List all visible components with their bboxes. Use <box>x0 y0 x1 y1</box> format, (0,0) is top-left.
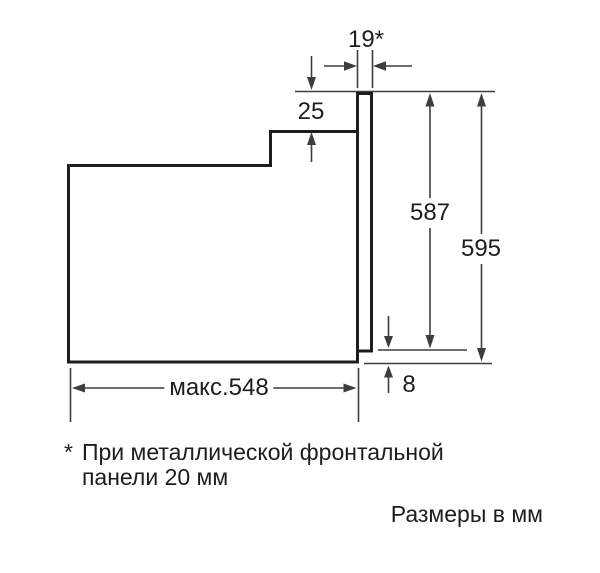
dim-front-panel-thickness-lines <box>324 50 412 88</box>
dim-panel-height-label: 587 <box>405 198 455 228</box>
dim-total-height-label: 595 <box>456 234 506 264</box>
units-note: Размеры в мм <box>391 501 543 528</box>
oven-front-panel-outline <box>358 94 372 352</box>
dim-front-panel-thickness-label: 19* <box>348 28 384 52</box>
footnote-line1: При металлической фронтальной <box>82 439 444 465</box>
dim-bottom-offset-lines <box>384 316 393 393</box>
dim-bottom-offset-label: 8 <box>402 373 415 397</box>
footnote-line2: панели 20 мм <box>82 464 228 490</box>
dim-max-depth-label: макс.548 <box>164 373 273 403</box>
footnote: * При металлической фронтальной панели 2… <box>64 440 444 490</box>
dim-total-height-lines <box>477 93 486 362</box>
footnote-asterisk: * <box>64 440 73 490</box>
dimension-diagram: 19* 25 587 595 8 макс.548 * При металлич… <box>0 0 600 573</box>
oven-body-outline <box>69 132 358 363</box>
footnote-text: При металлической фронтальной панели 20 … <box>82 440 444 490</box>
dim-top-step-label: 25 <box>298 100 325 124</box>
